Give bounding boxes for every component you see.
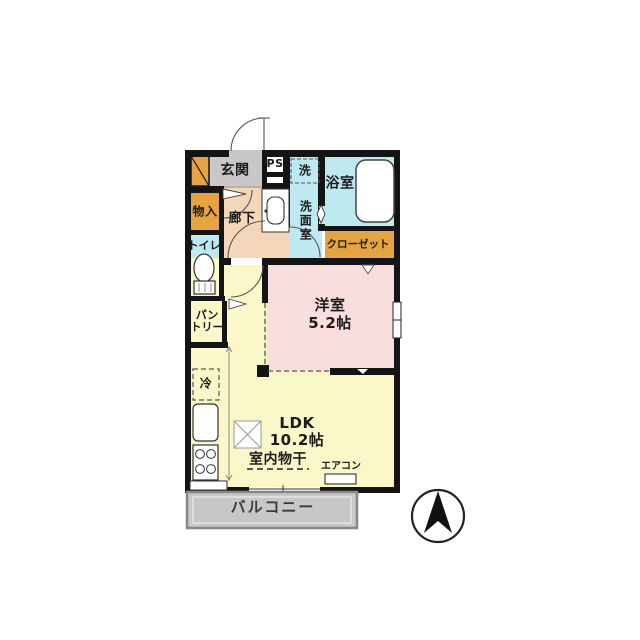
label-genkan: 玄関 bbox=[221, 164, 250, 179]
shoe-cabinet-icon bbox=[191, 156, 209, 186]
wall-hall-ldk-right bbox=[262, 258, 396, 265]
kitchen-hatch bbox=[190, 481, 227, 490]
label-balcony: バルコニー bbox=[231, 500, 316, 516]
wall-top bbox=[185, 150, 400, 157]
stove-icon bbox=[193, 445, 218, 480]
hall-ldk-door-gap bbox=[231, 258, 262, 265]
label-senmenshitsu: 洗面室 bbox=[299, 200, 312, 242]
label-youshitsu: 洋室 bbox=[314, 298, 345, 314]
label-fridge: 冷 bbox=[200, 378, 213, 391]
wall-toilet-pantry bbox=[185, 296, 225, 301]
label-aircon: エアコン bbox=[321, 462, 361, 473]
wall-bath-closet bbox=[318, 226, 396, 231]
label-toilet: トイレ bbox=[188, 240, 221, 252]
label-pantry-line1: パン bbox=[191, 309, 224, 321]
label-ldk: LDK bbox=[279, 416, 314, 432]
north-compass-icon bbox=[412, 490, 464, 542]
floor-hatch-icon bbox=[234, 421, 261, 448]
entrance-door-arc bbox=[231, 118, 264, 151]
label-ldk-size: 10.2帖 bbox=[270, 433, 325, 449]
window-icon bbox=[393, 302, 401, 338]
wall-genkan-bottom bbox=[185, 186, 224, 193]
floor-plan: PS 玄関 洗 洗面室 浴室 物入 廊下 トイレ クローゼット パン トリー 洋… bbox=[0, 0, 640, 640]
wall-ps-right bbox=[283, 150, 290, 183]
washbasin-faucet-dot bbox=[264, 209, 267, 212]
wall-youshitsu-post bbox=[257, 365, 269, 377]
label-ps: PS bbox=[267, 158, 284, 170]
aircon-unit-icon bbox=[325, 474, 356, 484]
label-bathroom: 浴室 bbox=[326, 177, 355, 192]
toilet-icon bbox=[194, 254, 215, 294]
label-hallway: 廊下 bbox=[228, 212, 255, 226]
wall-monoiri-toilet bbox=[185, 230, 224, 235]
wall-basin-top bbox=[262, 183, 290, 189]
label-closet: クローゼット bbox=[327, 239, 390, 250]
wall-hall-ldk-left bbox=[219, 258, 231, 265]
label-monoiri: 物入 bbox=[192, 206, 217, 219]
label-pantry-line2: トリー bbox=[191, 321, 224, 333]
wall-pantry-bottom bbox=[185, 342, 228, 348]
kitchen-sink-icon bbox=[193, 404, 218, 441]
label-youshitsu-size: 5.2帖 bbox=[308, 316, 352, 332]
label-laundry: 洗 bbox=[299, 165, 312, 178]
bathtub-icon bbox=[356, 160, 394, 222]
entrance-opening bbox=[229, 150, 262, 157]
washbasin-icon bbox=[267, 197, 284, 224]
label-pantry: パン トリー bbox=[191, 309, 224, 332]
label-indoor-drying: 室内物干 bbox=[249, 453, 307, 468]
